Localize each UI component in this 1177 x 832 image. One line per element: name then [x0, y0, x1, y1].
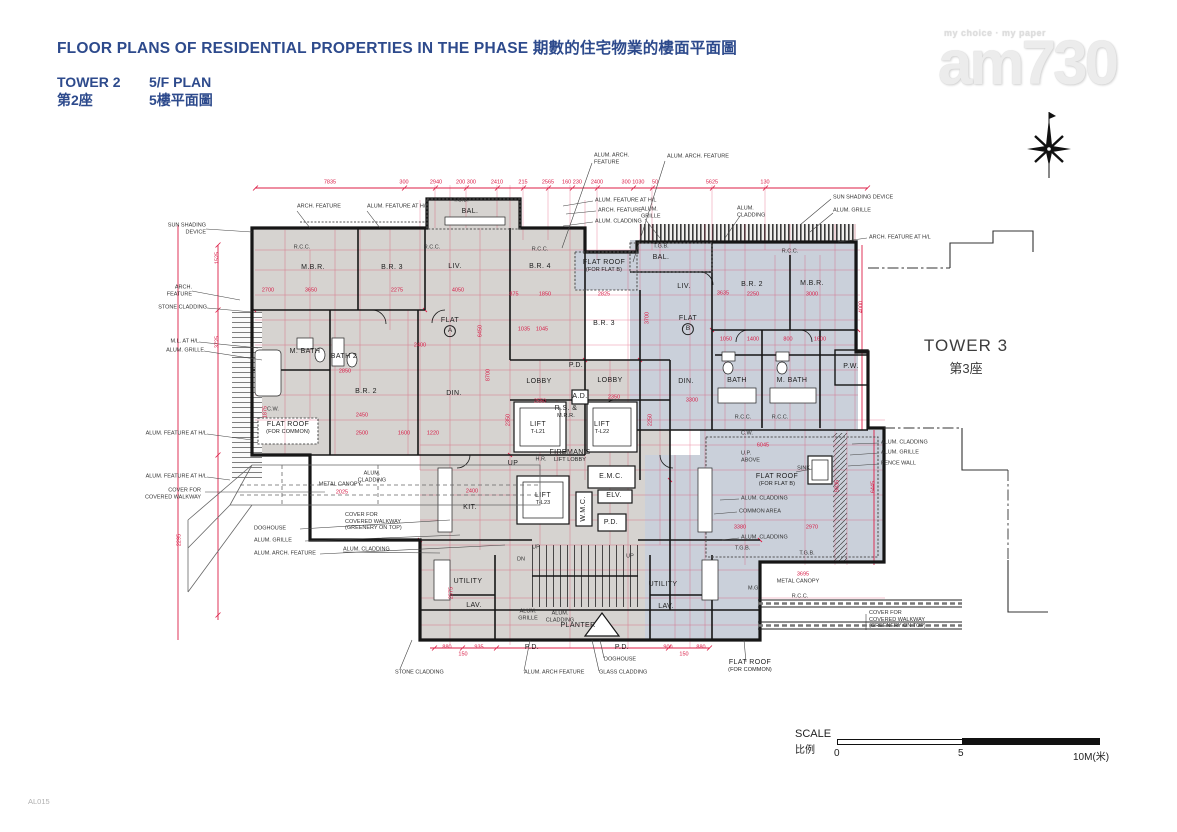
scale-label-zh: 比例: [795, 741, 815, 756]
scale-tick-0: 0: [834, 748, 840, 759]
tower3-label-zh: 第3座: [905, 358, 1027, 377]
scale-tick-10: 10M(米): [1073, 748, 1109, 763]
floor-label-en: 5/F PLAN: [149, 74, 211, 92]
tower-label-zh: 第2座: [57, 92, 149, 110]
tower-label-en: TOWER 2: [57, 74, 149, 92]
scale-segment-open: [837, 739, 964, 745]
floor-plan-drawing: [0, 0, 1177, 832]
scale-label-en: SCALE: [795, 728, 831, 740]
sheet-code: AL015: [28, 797, 50, 806]
tower3-label: TOWER 3 第3座: [905, 336, 1027, 377]
tower3-label-en: TOWER 3: [905, 336, 1027, 356]
page: FLOOR PLANS OF RESIDENTIAL PROPERTIES IN…: [0, 0, 1177, 832]
plan-subtitle: TOWER 2 5/F PLAN 第2座 5樓平面圖: [57, 74, 213, 109]
page-title: FLOOR PLANS OF RESIDENTIAL PROPERTIES IN…: [57, 36, 737, 58]
north-arrow-icon: [1027, 112, 1071, 178]
scale-tick-5: 5: [958, 748, 964, 759]
boundary-lines: [868, 231, 1048, 612]
floor-label-zh: 5樓平面圖: [149, 92, 213, 110]
scale-segment-solid: [962, 738, 1100, 745]
scale-bar: SCALE 比例 0 5 10M(米): [795, 726, 1125, 770]
